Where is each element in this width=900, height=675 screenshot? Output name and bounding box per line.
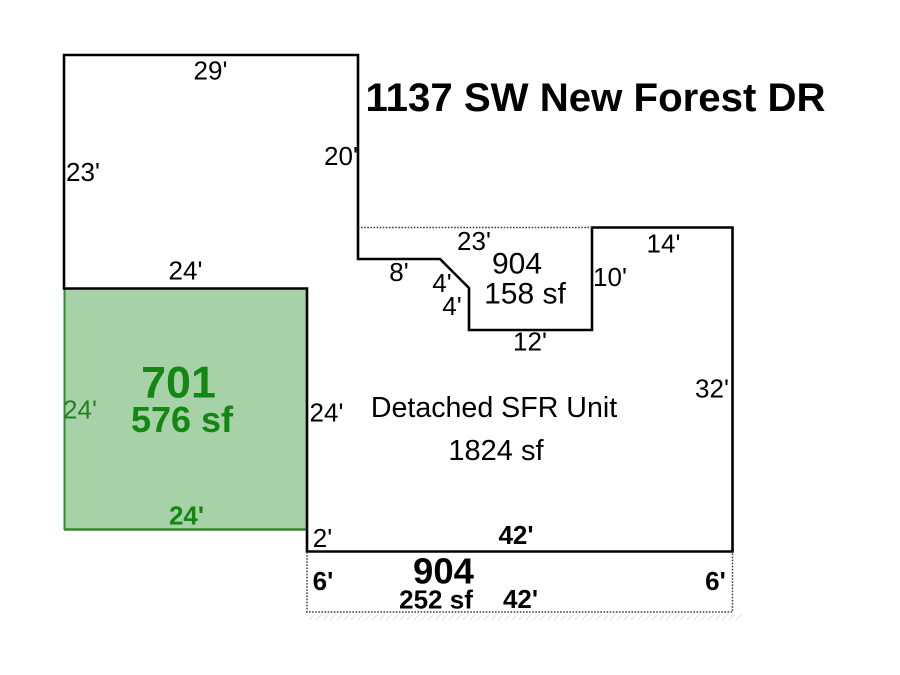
svg-text:6': 6' [705,566,726,596]
svg-text:24': 24' [169,501,204,531]
svg-text:23': 23' [66,157,100,187]
svg-text:42': 42' [498,520,533,550]
svg-text:1824 sf: 1824 sf [448,435,544,467]
svg-text:1137 SW New Forest DR: 1137 SW New Forest DR [366,75,826,120]
svg-text:14': 14' [647,229,681,259]
svg-text:252 sf: 252 sf [399,585,473,615]
svg-text:4': 4' [442,291,461,321]
svg-text:6': 6' [313,566,334,596]
svg-text:10': 10' [593,262,627,292]
svg-text:24': 24' [63,395,97,425]
svg-text:24': 24' [310,398,344,428]
svg-text:24': 24' [169,256,203,286]
svg-text:12': 12' [513,327,547,357]
svg-text:8': 8' [389,257,408,287]
svg-text:576 sf: 576 sf [131,399,234,440]
svg-text:23': 23' [457,226,491,256]
svg-text:158 sf: 158 sf [484,278,566,311]
svg-text:29': 29' [194,56,228,86]
svg-text:2': 2' [313,523,332,553]
svg-text:Detached SFR Unit: Detached SFR Unit [371,392,617,424]
svg-text:20': 20' [324,141,358,171]
svg-text:32': 32' [695,374,729,404]
svg-text:904: 904 [492,248,542,281]
svg-text:42': 42' [503,584,538,614]
